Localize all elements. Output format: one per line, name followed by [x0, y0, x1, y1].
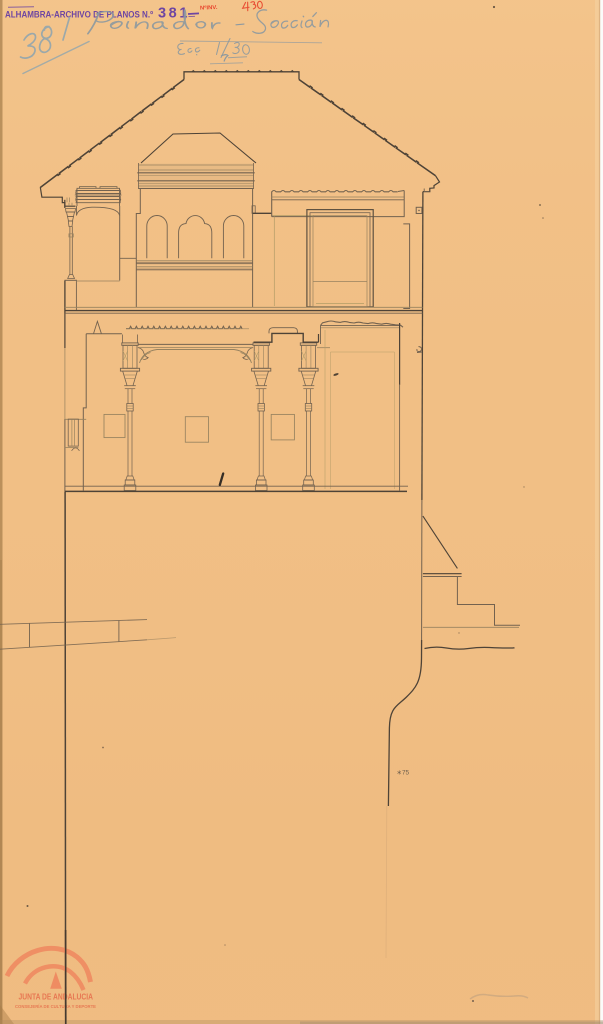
svg-text:ALHAMBRA-ARCHIVO DE PLANOS N.º: ALHAMBRA-ARCHIVO DE PLANOS N.º [5, 10, 154, 20]
svg-text:NºINV.: NºINV. [200, 5, 218, 12]
svg-text:∗75: ∗75 [397, 770, 410, 777]
svg-text:JUNTA DE ANDALUCIA: JUNTA DE ANDALUCIA [19, 992, 94, 1002]
